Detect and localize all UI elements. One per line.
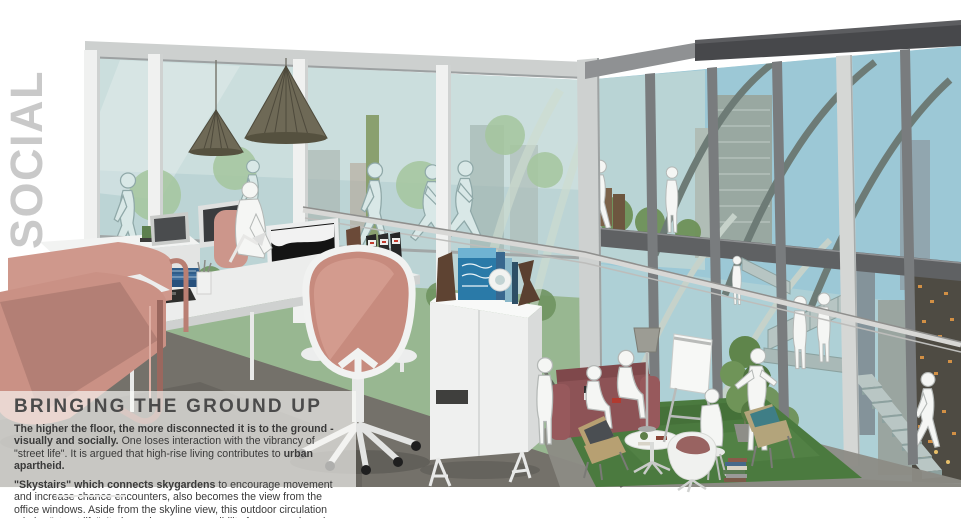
p2-bold-lead: "Skystairs" which connects skygardens (14, 479, 215, 491)
side-label-social: SOCIAL (4, 70, 49, 249)
panel-paragraph-2: "Skystairs" which connects skygardens to… (14, 479, 338, 518)
faint-divider-line (56, 495, 126, 497)
info-panel: BRINGING THE GROUND UP The higher the fl… (0, 391, 356, 488)
presentation-board: SOCIAL BRINGING THE GROUND UP The higher… (0, 0, 961, 518)
panel-heading: BRINGING THE GROUND UP (14, 396, 356, 418)
panel-paragraph-1: The higher the floor, the more disconnec… (14, 423, 338, 472)
